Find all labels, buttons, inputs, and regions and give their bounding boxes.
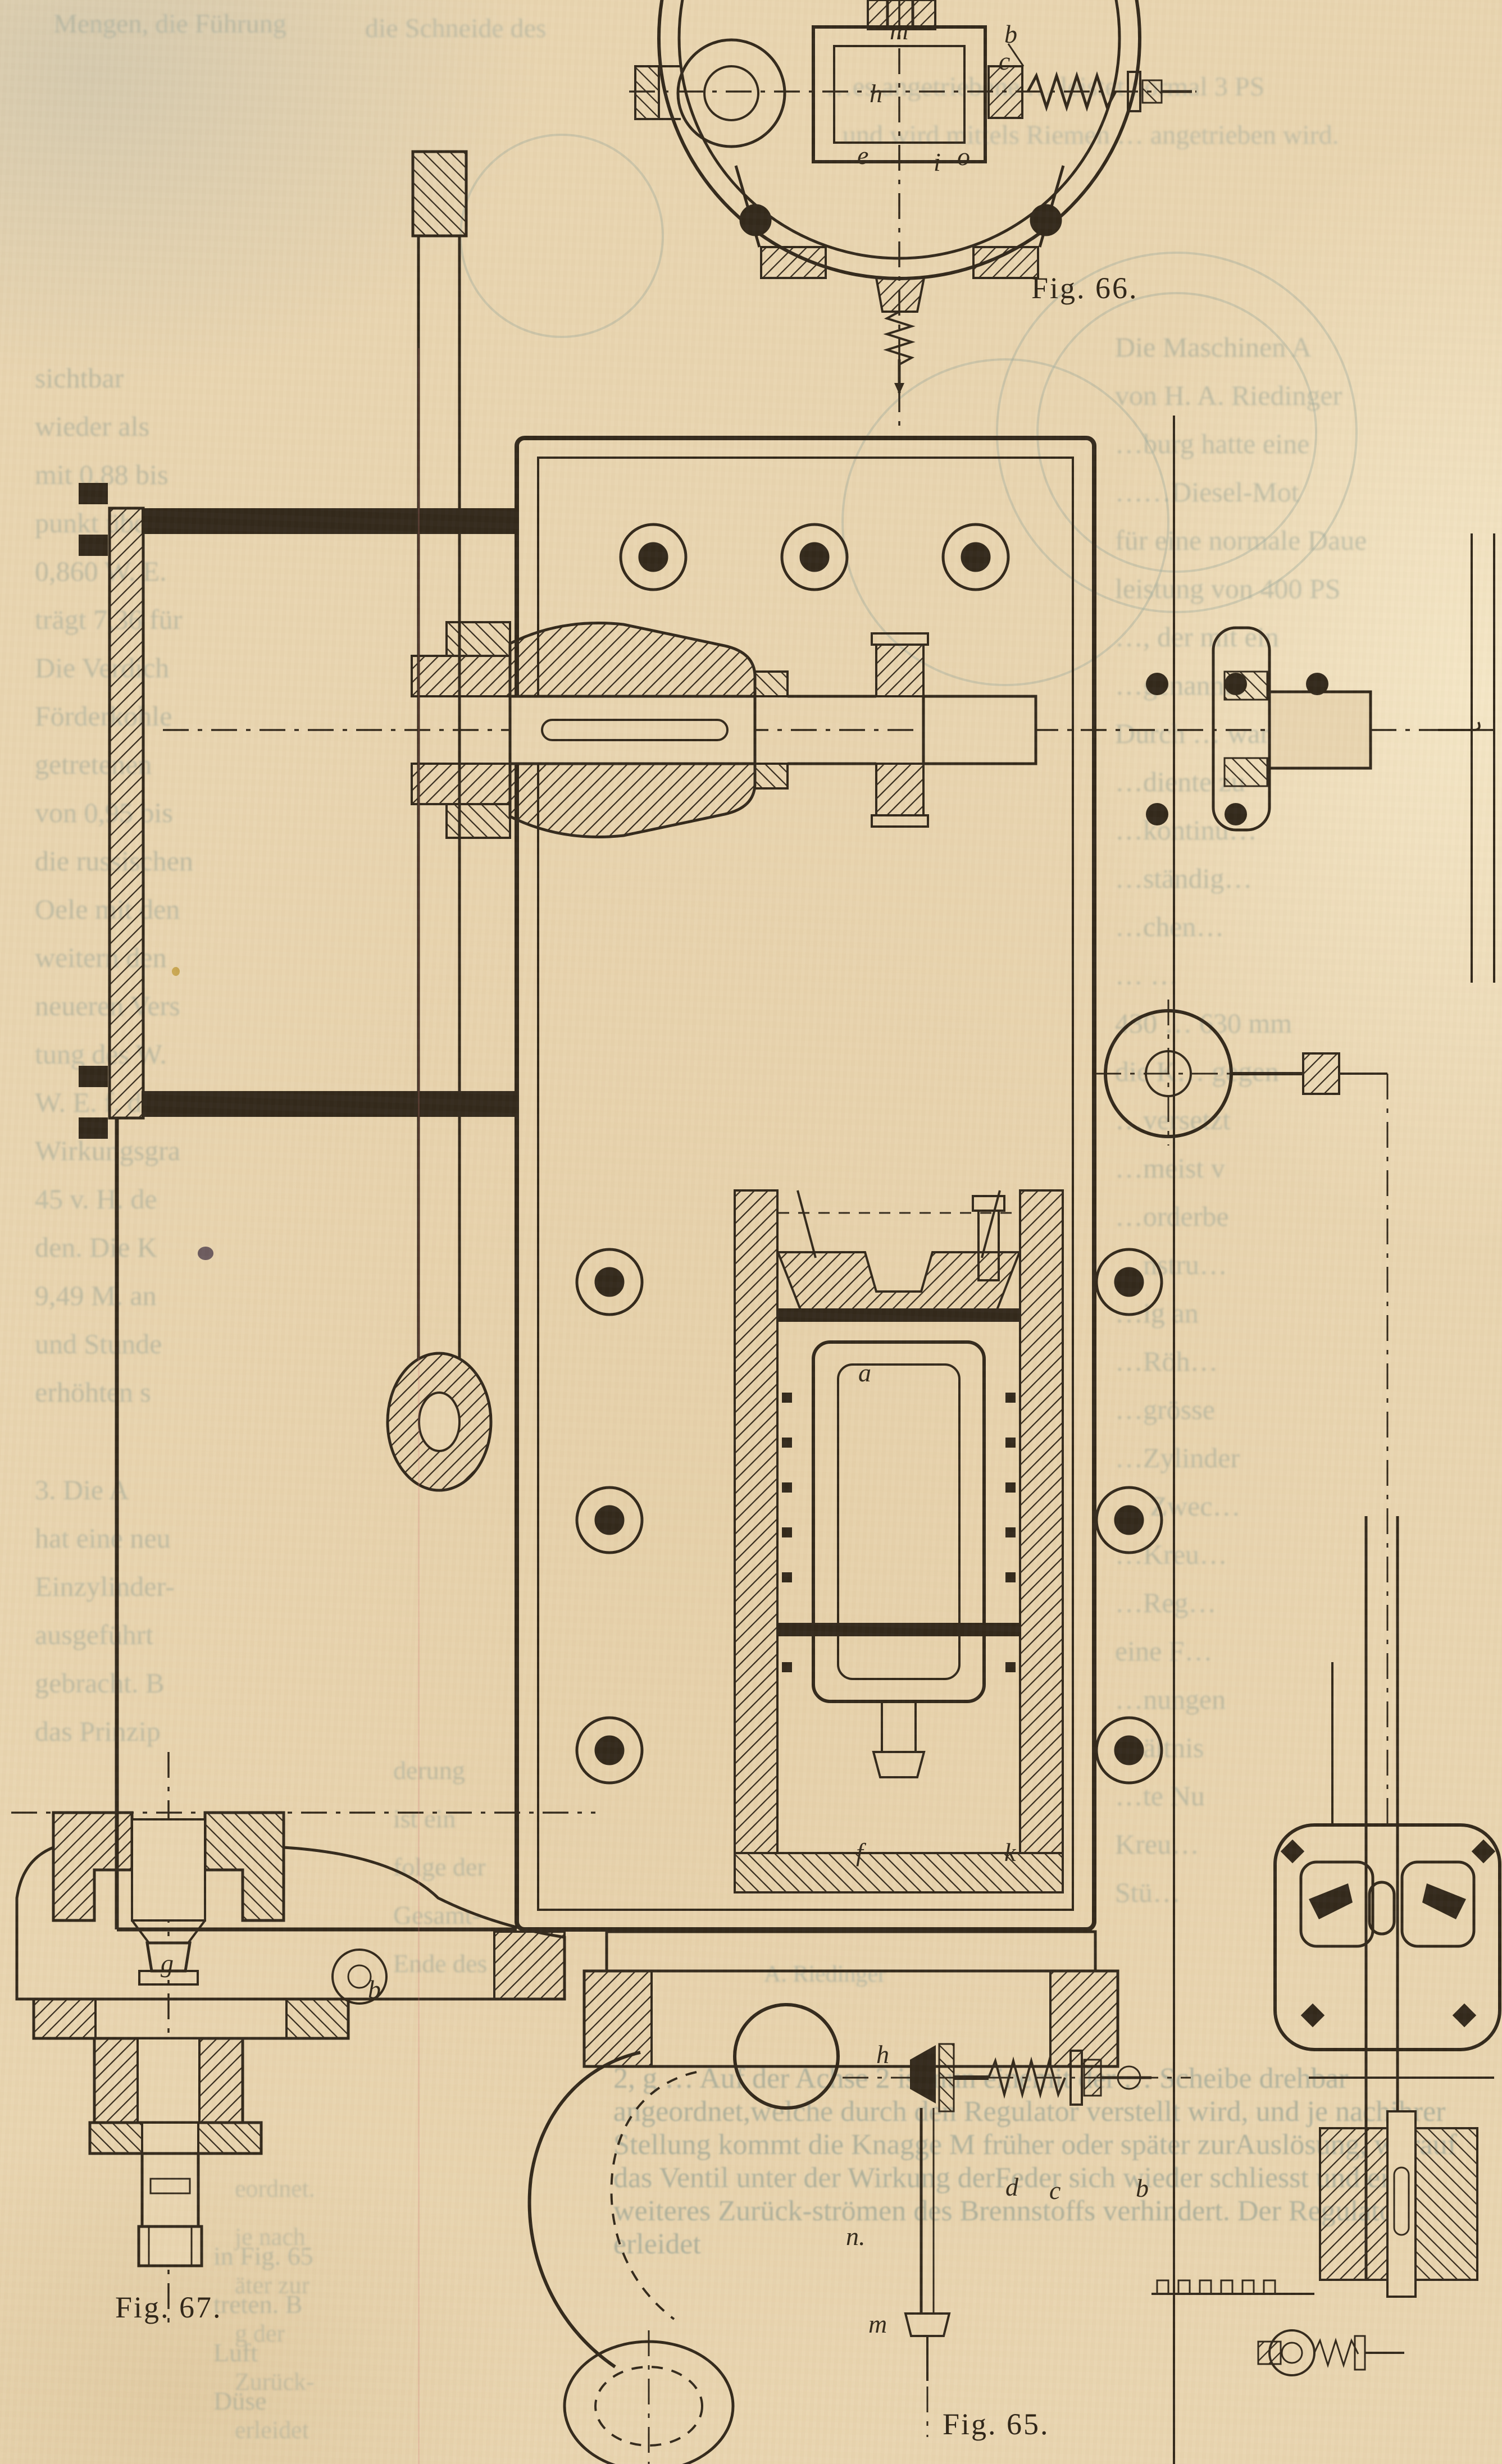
fig67-label-b: b bbox=[368, 1974, 381, 2004]
fig66-label-i: i bbox=[934, 147, 941, 177]
figures-drawing bbox=[0, 0, 1502, 2464]
fig65-caption: Fig. 65. bbox=[943, 2407, 1050, 2442]
fig66-label-m: m bbox=[890, 16, 908, 45]
fig65-label-m: m bbox=[868, 2309, 887, 2339]
fig65-label-a: a bbox=[858, 1358, 871, 1388]
fig67-caption: Fig. 67. bbox=[115, 2290, 222, 2325]
fig65-label-c: c bbox=[1049, 2175, 1060, 2205]
fig67-label-g: g bbox=[161, 1949, 174, 1978]
scanned-page: Mengen, die Führung die Schneide des …es… bbox=[0, 0, 1502, 2464]
fig66-label-c: c bbox=[999, 46, 1010, 76]
paper-fold-line bbox=[418, 348, 420, 2464]
fig65-label-f: f bbox=[856, 1837, 863, 1867]
fig65-label-h: h bbox=[876, 2039, 889, 2069]
fig67-drawing bbox=[11, 1752, 595, 2325]
fig66-drawing bbox=[629, 0, 1196, 427]
fig65-label-n: n. bbox=[846, 2221, 866, 2251]
fig66-caption: Fig. 66. bbox=[1031, 271, 1139, 305]
fig66-label-b: b bbox=[1004, 19, 1017, 49]
fig66-label-e: e bbox=[857, 140, 868, 170]
fig65-label-b: b bbox=[1136, 2173, 1149, 2203]
fig65-drawing bbox=[79, 152, 1502, 2464]
ink-speck bbox=[198, 1247, 213, 1260]
fig65-label-d: d bbox=[1005, 2172, 1018, 2202]
fig65-label-k: k bbox=[1004, 1837, 1016, 1867]
paper-speck bbox=[172, 967, 180, 976]
fig66-label-h: h bbox=[870, 79, 882, 108]
fig66-label-o: o bbox=[957, 142, 970, 171]
ghost-linework bbox=[461, 135, 1357, 685]
